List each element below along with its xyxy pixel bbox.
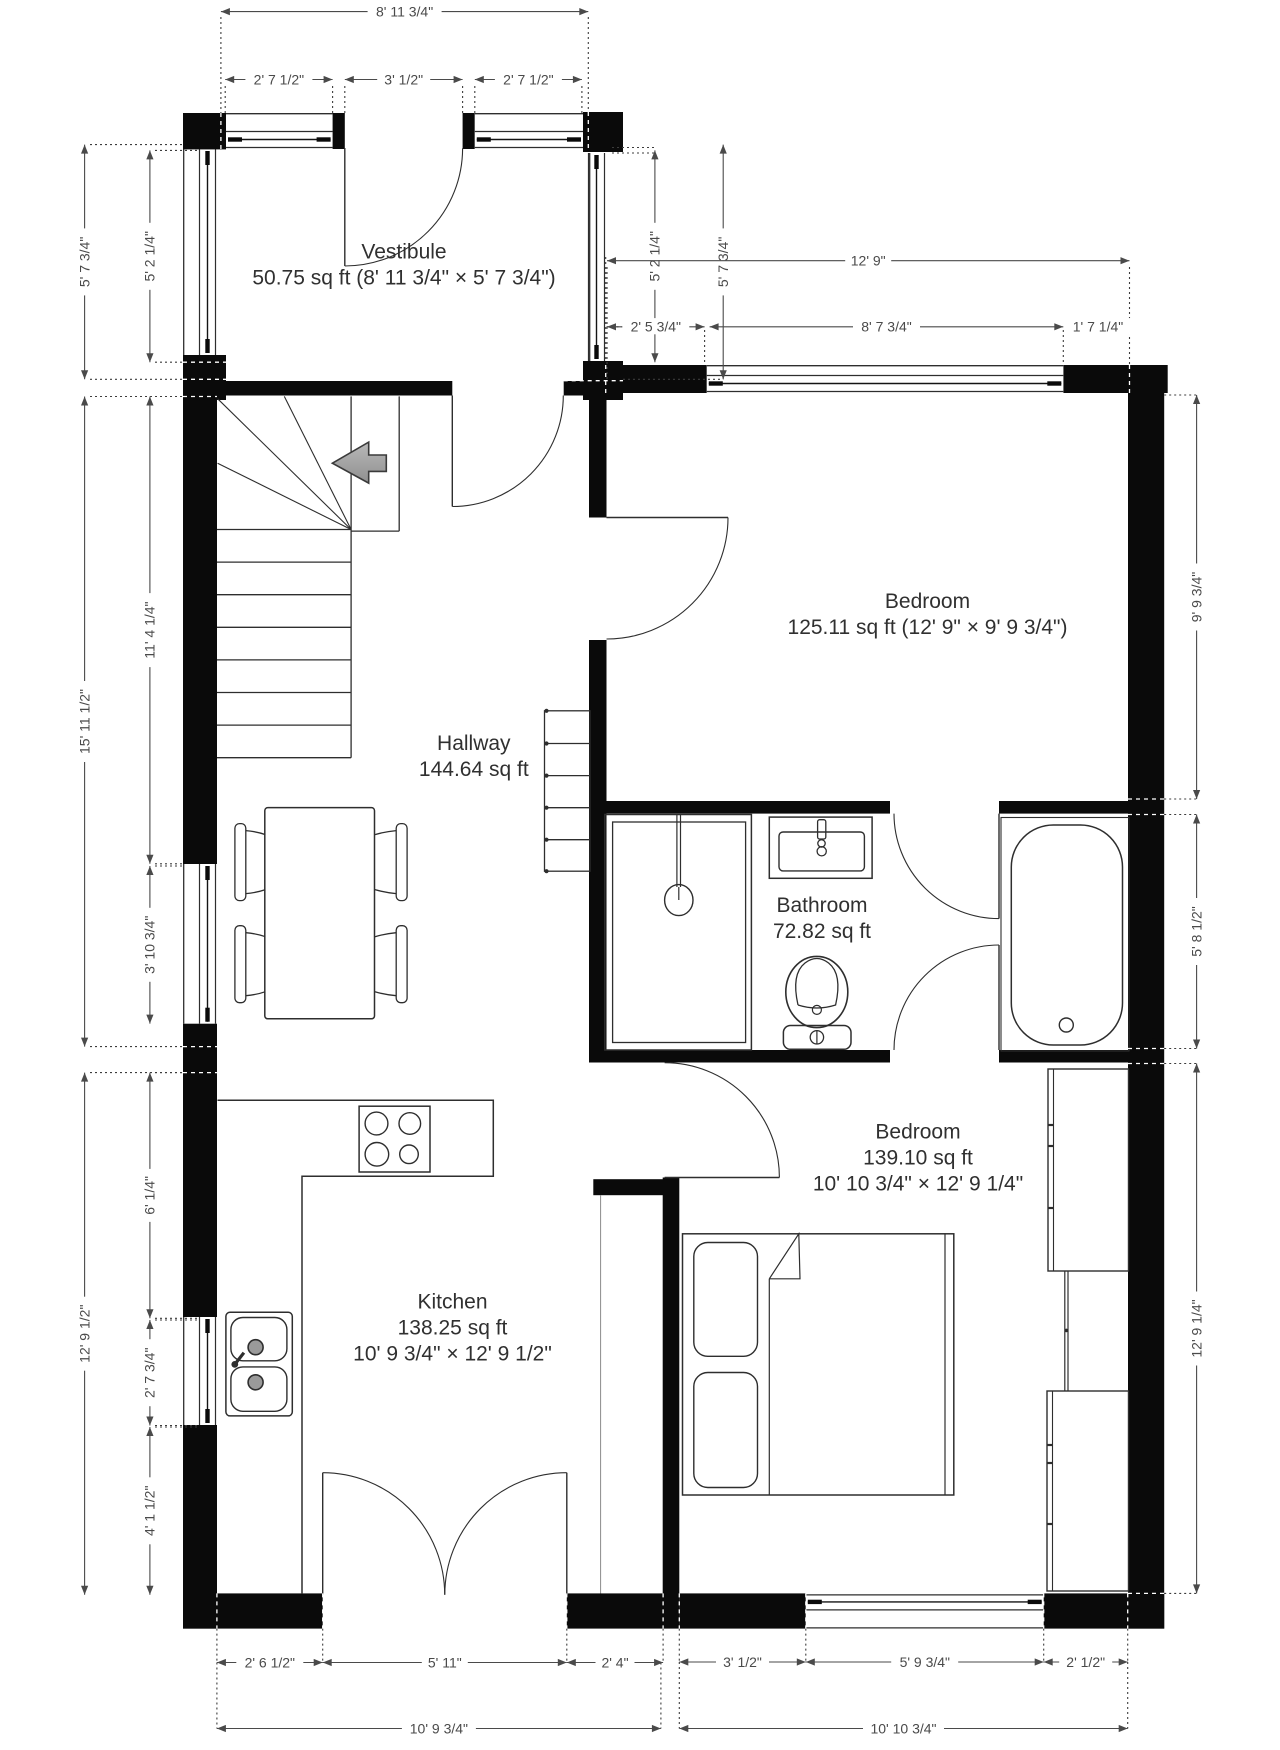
svg-text:6' 1/4": 6' 1/4": [142, 1176, 158, 1215]
svg-text:5' 7 3/4": 5' 7 3/4": [715, 237, 731, 287]
svg-text:2' 7 1/2": 2' 7 1/2": [254, 71, 304, 87]
svg-text:138.25 sq ft: 138.25 sq ft: [398, 1317, 508, 1340]
svg-text:Bedroom: Bedroom: [885, 590, 970, 613]
svg-text:8' 11 3/4": 8' 11 3/4": [376, 3, 433, 19]
svg-text:2' 7 1/2": 2' 7 1/2": [503, 71, 553, 87]
svg-text:1' 7 1/4": 1' 7 1/4": [1073, 319, 1123, 335]
svg-text:2' 7 3/4": 2' 7 3/4": [142, 1348, 158, 1398]
svg-text:139.10 sq ft: 139.10 sq ft: [863, 1147, 973, 1170]
svg-text:3' 10 3/4": 3' 10 3/4": [142, 916, 158, 974]
svg-text:9' 9 3/4": 9' 9 3/4": [1188, 572, 1204, 622]
svg-text:Vestibule: Vestibule: [361, 241, 446, 264]
svg-text:10' 10 3/4" × 12' 9 1/4": 10' 10 3/4" × 12' 9 1/4": [813, 1173, 1023, 1196]
svg-text:5' 2 1/4": 5' 2 1/4": [142, 231, 158, 281]
svg-text:Bathroom: Bathroom: [776, 894, 867, 917]
svg-text:2' 1/2": 2' 1/2": [1066, 1654, 1105, 1670]
svg-text:12' 9 1/2": 12' 9 1/2": [76, 1305, 92, 1363]
svg-text:2' 6 1/2": 2' 6 1/2": [245, 1654, 295, 1670]
svg-text:10' 9 3/4": 10' 9 3/4": [410, 1720, 468, 1736]
svg-text:12' 9": 12' 9": [851, 253, 886, 269]
svg-text:5' 9 3/4": 5' 9 3/4": [900, 1654, 950, 1670]
svg-text:12' 9 1/4": 12' 9 1/4": [1188, 1299, 1204, 1357]
svg-text:2' 4": 2' 4": [601, 1654, 628, 1670]
svg-text:10' 10 3/4": 10' 10 3/4": [870, 1720, 936, 1736]
svg-text:2' 5 3/4": 2' 5 3/4": [631, 319, 681, 335]
svg-text:144.64 sq ft: 144.64 sq ft: [419, 758, 529, 781]
svg-text:Kitchen: Kitchen: [417, 1291, 487, 1314]
svg-text:5' 11": 5' 11": [428, 1654, 462, 1670]
svg-text:5' 7 3/4": 5' 7 3/4": [76, 237, 92, 287]
svg-text:3' 1/2": 3' 1/2": [723, 1654, 762, 1670]
svg-text:Bedroom: Bedroom: [875, 1121, 960, 1144]
svg-text:125.11 sq ft (12' 9" × 9' 9 3/: 125.11 sq ft (12' 9" × 9' 9 3/4"): [788, 616, 1068, 639]
svg-text:10' 9 3/4" × 12' 9 1/2": 10' 9 3/4" × 12' 9 1/2": [353, 1343, 552, 1366]
svg-text:4' 1 1/2": 4' 1 1/2": [142, 1486, 158, 1536]
svg-text:8' 7 3/4": 8' 7 3/4": [861, 319, 911, 335]
svg-text:50.75 sq ft (8' 11 3/4" × 5' 7: 50.75 sq ft (8' 11 3/4" × 5' 7 3/4"): [252, 267, 555, 290]
svg-text:5' 2 1/4": 5' 2 1/4": [647, 231, 663, 281]
svg-text:5' 8 1/2": 5' 8 1/2": [1188, 906, 1204, 956]
svg-text:15' 11 1/2": 15' 11 1/2": [76, 689, 92, 754]
svg-text:72.82 sq ft: 72.82 sq ft: [773, 920, 871, 943]
svg-text:Hallway: Hallway: [437, 732, 511, 755]
svg-text:11' 4 1/4": 11' 4 1/4": [142, 601, 158, 658]
svg-text:3' 1/2": 3' 1/2": [384, 71, 423, 87]
